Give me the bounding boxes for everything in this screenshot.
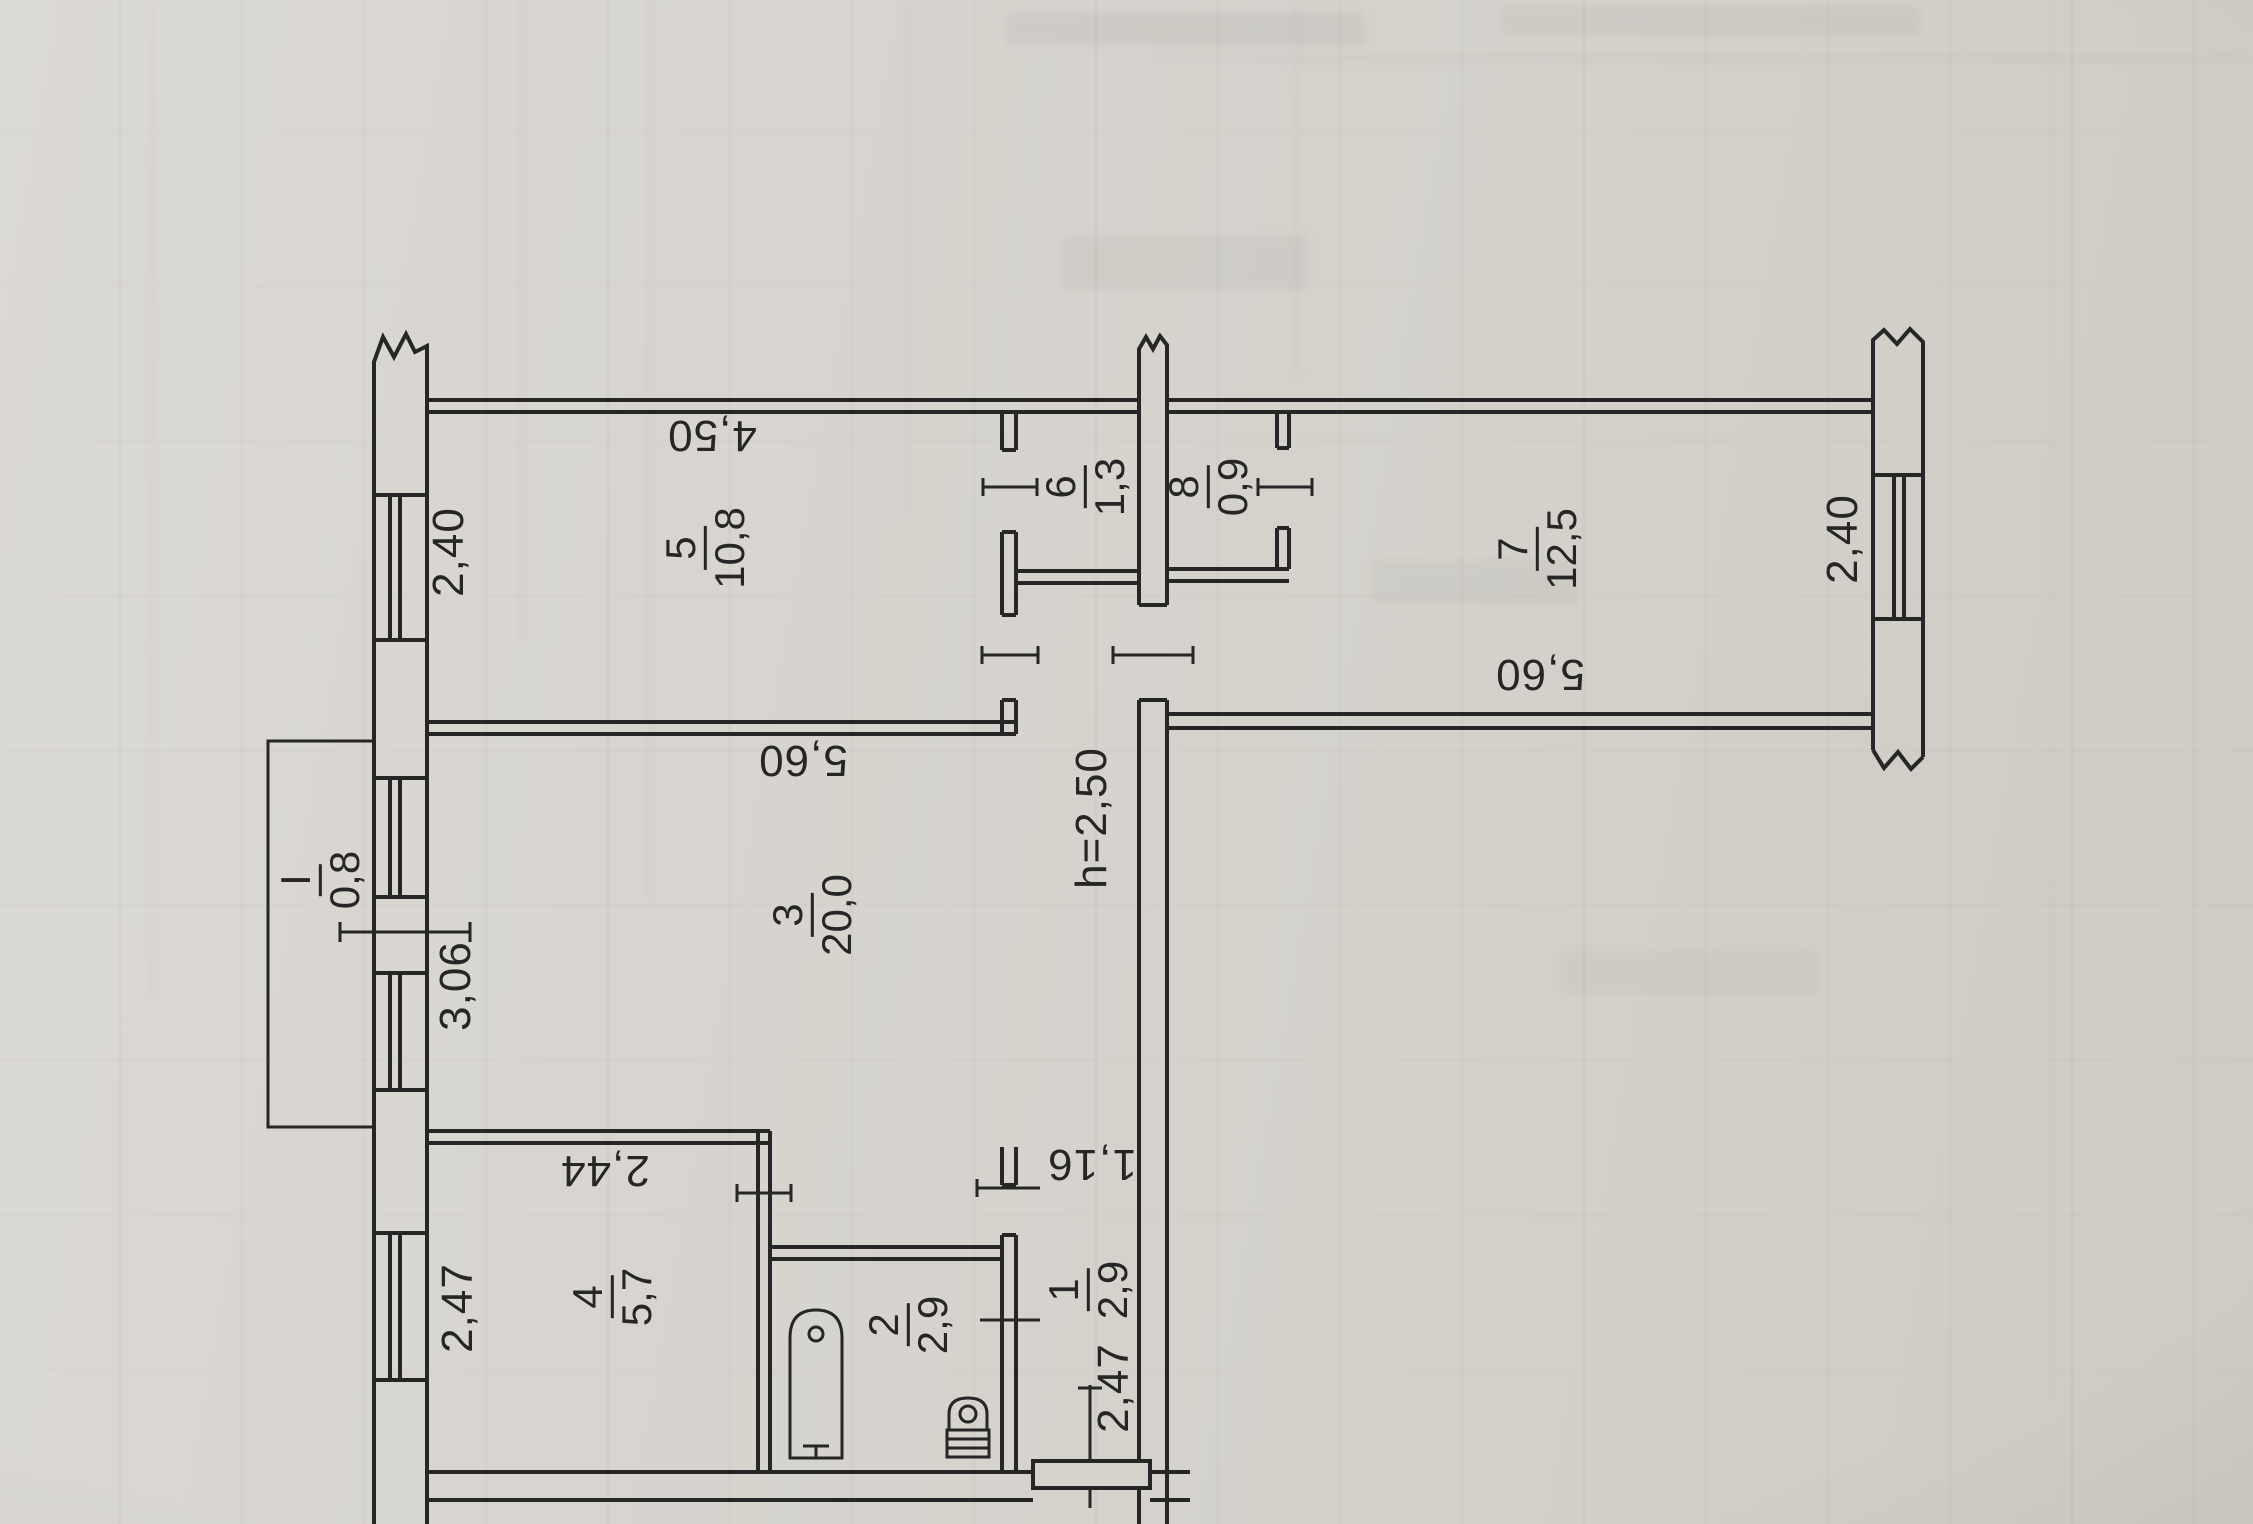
window-glass-lines (390, 495, 400, 1380)
bathtub-drain (809, 1327, 823, 1341)
toilet (947, 1398, 989, 1457)
room-area: 0,8 (322, 851, 367, 909)
room-area: 20,0 (814, 874, 859, 956)
dim-room3-width: 5,60 (758, 735, 848, 785)
room-area: 10,8 (707, 507, 752, 589)
entrance-doorway (1033, 1461, 1150, 1488)
room-area: 12,5 (1539, 508, 1584, 590)
room-area: 2,9 (910, 1296, 955, 1354)
exterior-wall-right (1873, 329, 1923, 769)
room-number: 1 (1042, 1268, 1090, 1311)
room-3-label: 3 20,0 (766, 874, 858, 956)
dim-hall-width: 1,16 (1047, 1139, 1137, 1189)
room-7-label: 7 12,5 (1491, 508, 1583, 590)
dim-kitchen-depth: 2,47 (433, 1263, 483, 1353)
room-4-label: 4 5,7 (566, 1268, 658, 1326)
balcony-outline (268, 741, 374, 1127)
dim-room5-width: 4,50 (667, 410, 757, 460)
balcony-label: I 0,8 (274, 851, 366, 909)
room-number: I (274, 864, 322, 896)
room-number: 2 (862, 1303, 910, 1346)
room-1-label: 1 2,9 (1042, 1261, 1134, 1319)
room-6-label: 6 1,3 (1039, 458, 1131, 516)
dim-hall-depth: 2,47 (1089, 1343, 1139, 1433)
window-glass-lines (1894, 475, 1904, 619)
room-number: 8 (1162, 465, 1210, 508)
bathtub (790, 1310, 842, 1458)
toilet-bowl (960, 1406, 976, 1422)
room-area: 5,7 (614, 1268, 659, 1326)
room-area: 0,9 (1210, 458, 1255, 516)
doorway-jambs (1139, 605, 1167, 700)
dim-room7-width: 5,60 (1495, 649, 1585, 699)
room-number: 4 (566, 1275, 614, 1318)
dim-balcony-length: 3,06 (431, 941, 481, 1031)
room-number: 6 (1039, 465, 1087, 508)
room-2-label: 2 2,9 (862, 1296, 954, 1354)
room-number: 3 (766, 893, 814, 936)
exterior-wall-left (374, 334, 427, 1524)
ceiling-height-note: h=2,50 (1067, 747, 1117, 889)
wall-break-mark (1873, 750, 1923, 769)
room-8-label: 8 0,9 (1162, 458, 1254, 516)
floor-plan-photo: 4,50 5 10,8 2,40 6 1,3 8 0,9 7 12,5 2,40… (0, 0, 2253, 1524)
room-area: 1,3 (1087, 458, 1132, 516)
room-5-label: 5 10,8 (659, 507, 751, 589)
dim-room7-depth: 2,40 (1818, 494, 1868, 584)
room-number: 7 (1491, 527, 1539, 570)
room-area: 2,9 (1090, 1261, 1135, 1319)
toilet-tank (947, 1430, 989, 1457)
exterior-wall-top (427, 400, 1873, 412)
room-number: 5 (659, 526, 707, 569)
dim-kitchen-width: 2,44 (560, 1145, 650, 1195)
dim-room5-depth: 2,40 (424, 507, 474, 597)
